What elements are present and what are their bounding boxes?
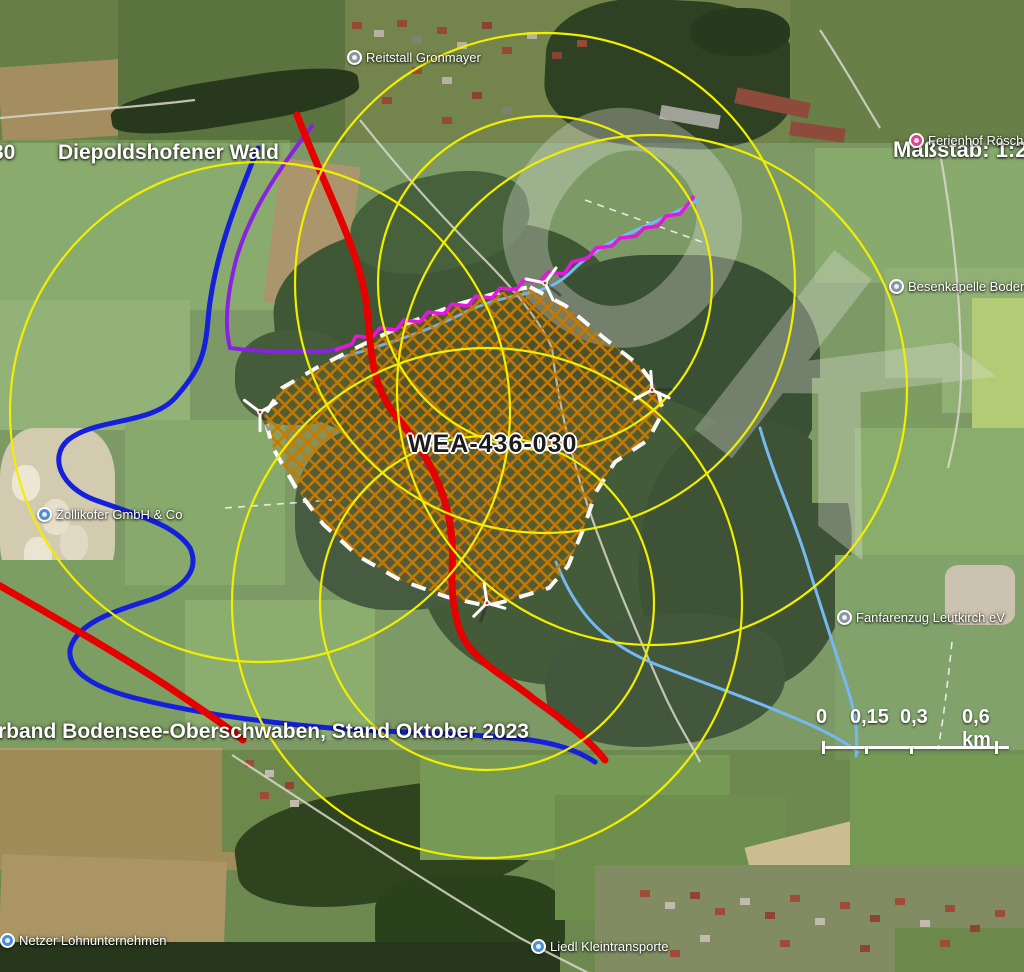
poi-zollikofer[interactable]: Zollikofer GmbH & Co	[37, 507, 182, 522]
poi-marker-icon[interactable]	[37, 507, 52, 522]
poi-liedl[interactable]: Liedl Kleintransporte	[531, 939, 669, 954]
poi-marker-icon[interactable]	[837, 610, 852, 625]
scale-bar-tick	[865, 746, 868, 754]
scale-bar: 0 0,15 0,3 0,6 km	[810, 706, 1024, 754]
poi-label: Ferienhof Rösch Allgä	[928, 133, 1024, 148]
poi-marker-icon[interactable]	[531, 939, 546, 954]
clipped-map-number: 30	[0, 141, 15, 165]
scale-bar-tick	[822, 741, 825, 754]
poi-netzer[interactable]: Netzer Lohnunternehmen	[0, 933, 166, 948]
poi-marker-icon[interactable]	[0, 933, 15, 948]
poi-besenkapelle[interactable]: Besenkapelle Bodenhaus	[889, 279, 1024, 294]
poi-marker-icon[interactable]	[889, 279, 904, 294]
scale-bar-line	[822, 746, 1009, 749]
map-canvas[interactable]: OK	[0, 0, 1024, 972]
poi-ferienhof-roesch[interactable]: Ferienhof Rösch Allgä	[909, 133, 1024, 148]
poi-label: Besenkapelle Bodenhaus	[908, 279, 1024, 294]
poi-label: Liedl Kleintransporte	[550, 939, 669, 954]
poi-marker-icon[interactable]	[909, 133, 924, 148]
attribution-label: rband Bodensee-Oberschwaben, Stand Oktob…	[0, 720, 529, 744]
poi-fanfarenzug[interactable]: Fanfarenzug Leutkirch eV	[837, 610, 1005, 625]
scale-bar-tick	[910, 746, 913, 754]
poi-marker-icon[interactable]	[347, 50, 362, 65]
poi-reitstall-gronmayer[interactable]: Reitstall Gronmayer	[347, 50, 481, 65]
poi-label: Reitstall Gronmayer	[366, 50, 481, 65]
scale-bar-tick	[995, 741, 998, 754]
poi-label: Zollikofer GmbH & Co	[56, 507, 182, 522]
poi-label: Fanfarenzug Leutkirch eV	[856, 610, 1005, 625]
scale-tick-label: 0,3	[900, 706, 928, 729]
site-id-label: WEA-436-030	[408, 430, 577, 459]
forest-name-label: Diepoldshofener Wald	[58, 141, 279, 165]
scale-tick-label: 0	[816, 706, 827, 729]
scale-tick-label: 0,15	[850, 706, 889, 729]
poi-label: Netzer Lohnunternehmen	[19, 933, 166, 948]
